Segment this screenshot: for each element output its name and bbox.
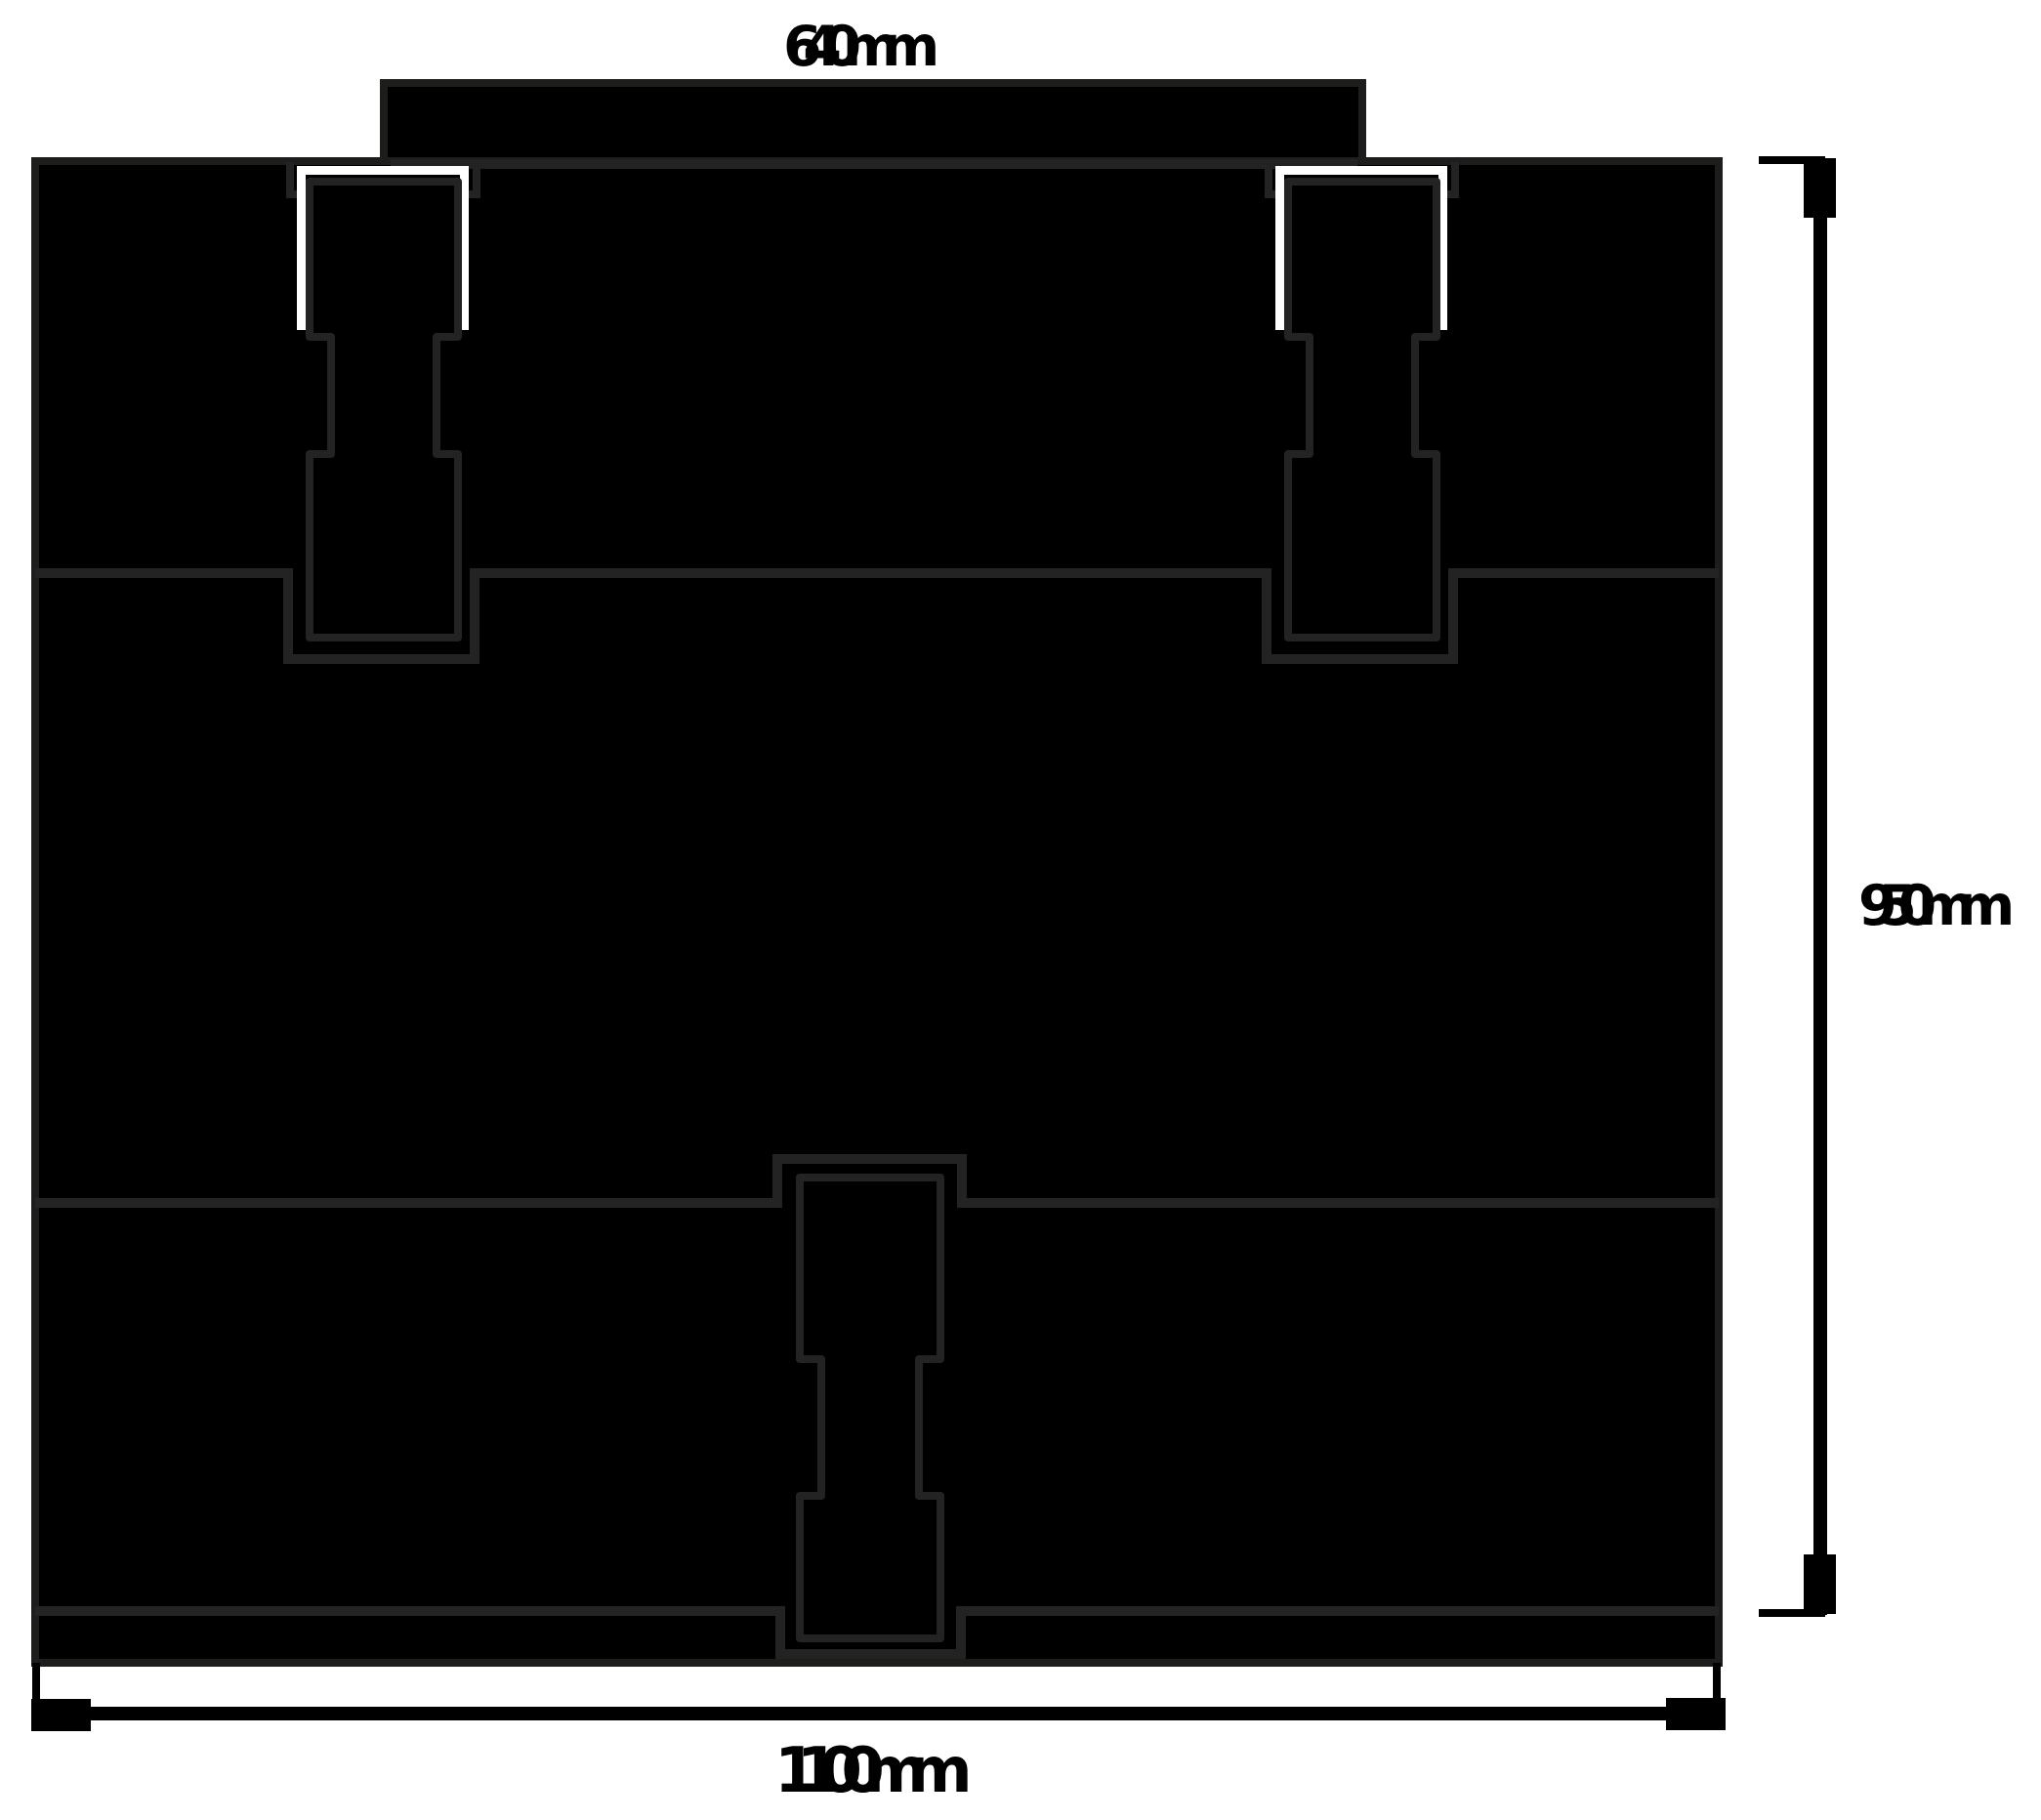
width-dim-line [35,1707,1719,1720]
kerf-right-bone-top [1275,166,1447,175]
panel-drawing-svg [0,0,2041,1820]
dogbone-top-left [310,182,458,638]
height-arrow-top [1804,158,1836,218]
dogbone-bottom-center [800,1178,940,1638]
height-arrow-bottom [1804,1554,1836,1614]
kerf-right-bone-left [1275,166,1284,330]
dogbone-top-right [1288,182,1437,638]
dimension-label-top-width: 640mm [783,20,921,75]
height-dim-line [1813,160,1827,1615]
technical-drawing-canvas: 640mm 950mm 1100mm [0,0,2041,1820]
dimension-height [1759,156,1836,1617]
dimension-width [31,1663,1726,1731]
kerf-left-bone-left [297,166,306,330]
width-cap-left [31,1699,91,1731]
dimension-label-height: 950mm [1858,879,1996,934]
kerf-left-bone-top [297,166,469,175]
top-tab [384,83,1362,167]
dimension-label-bottom-width: 1100mm [774,1740,951,1802]
width-cap-right [1666,1698,1726,1730]
